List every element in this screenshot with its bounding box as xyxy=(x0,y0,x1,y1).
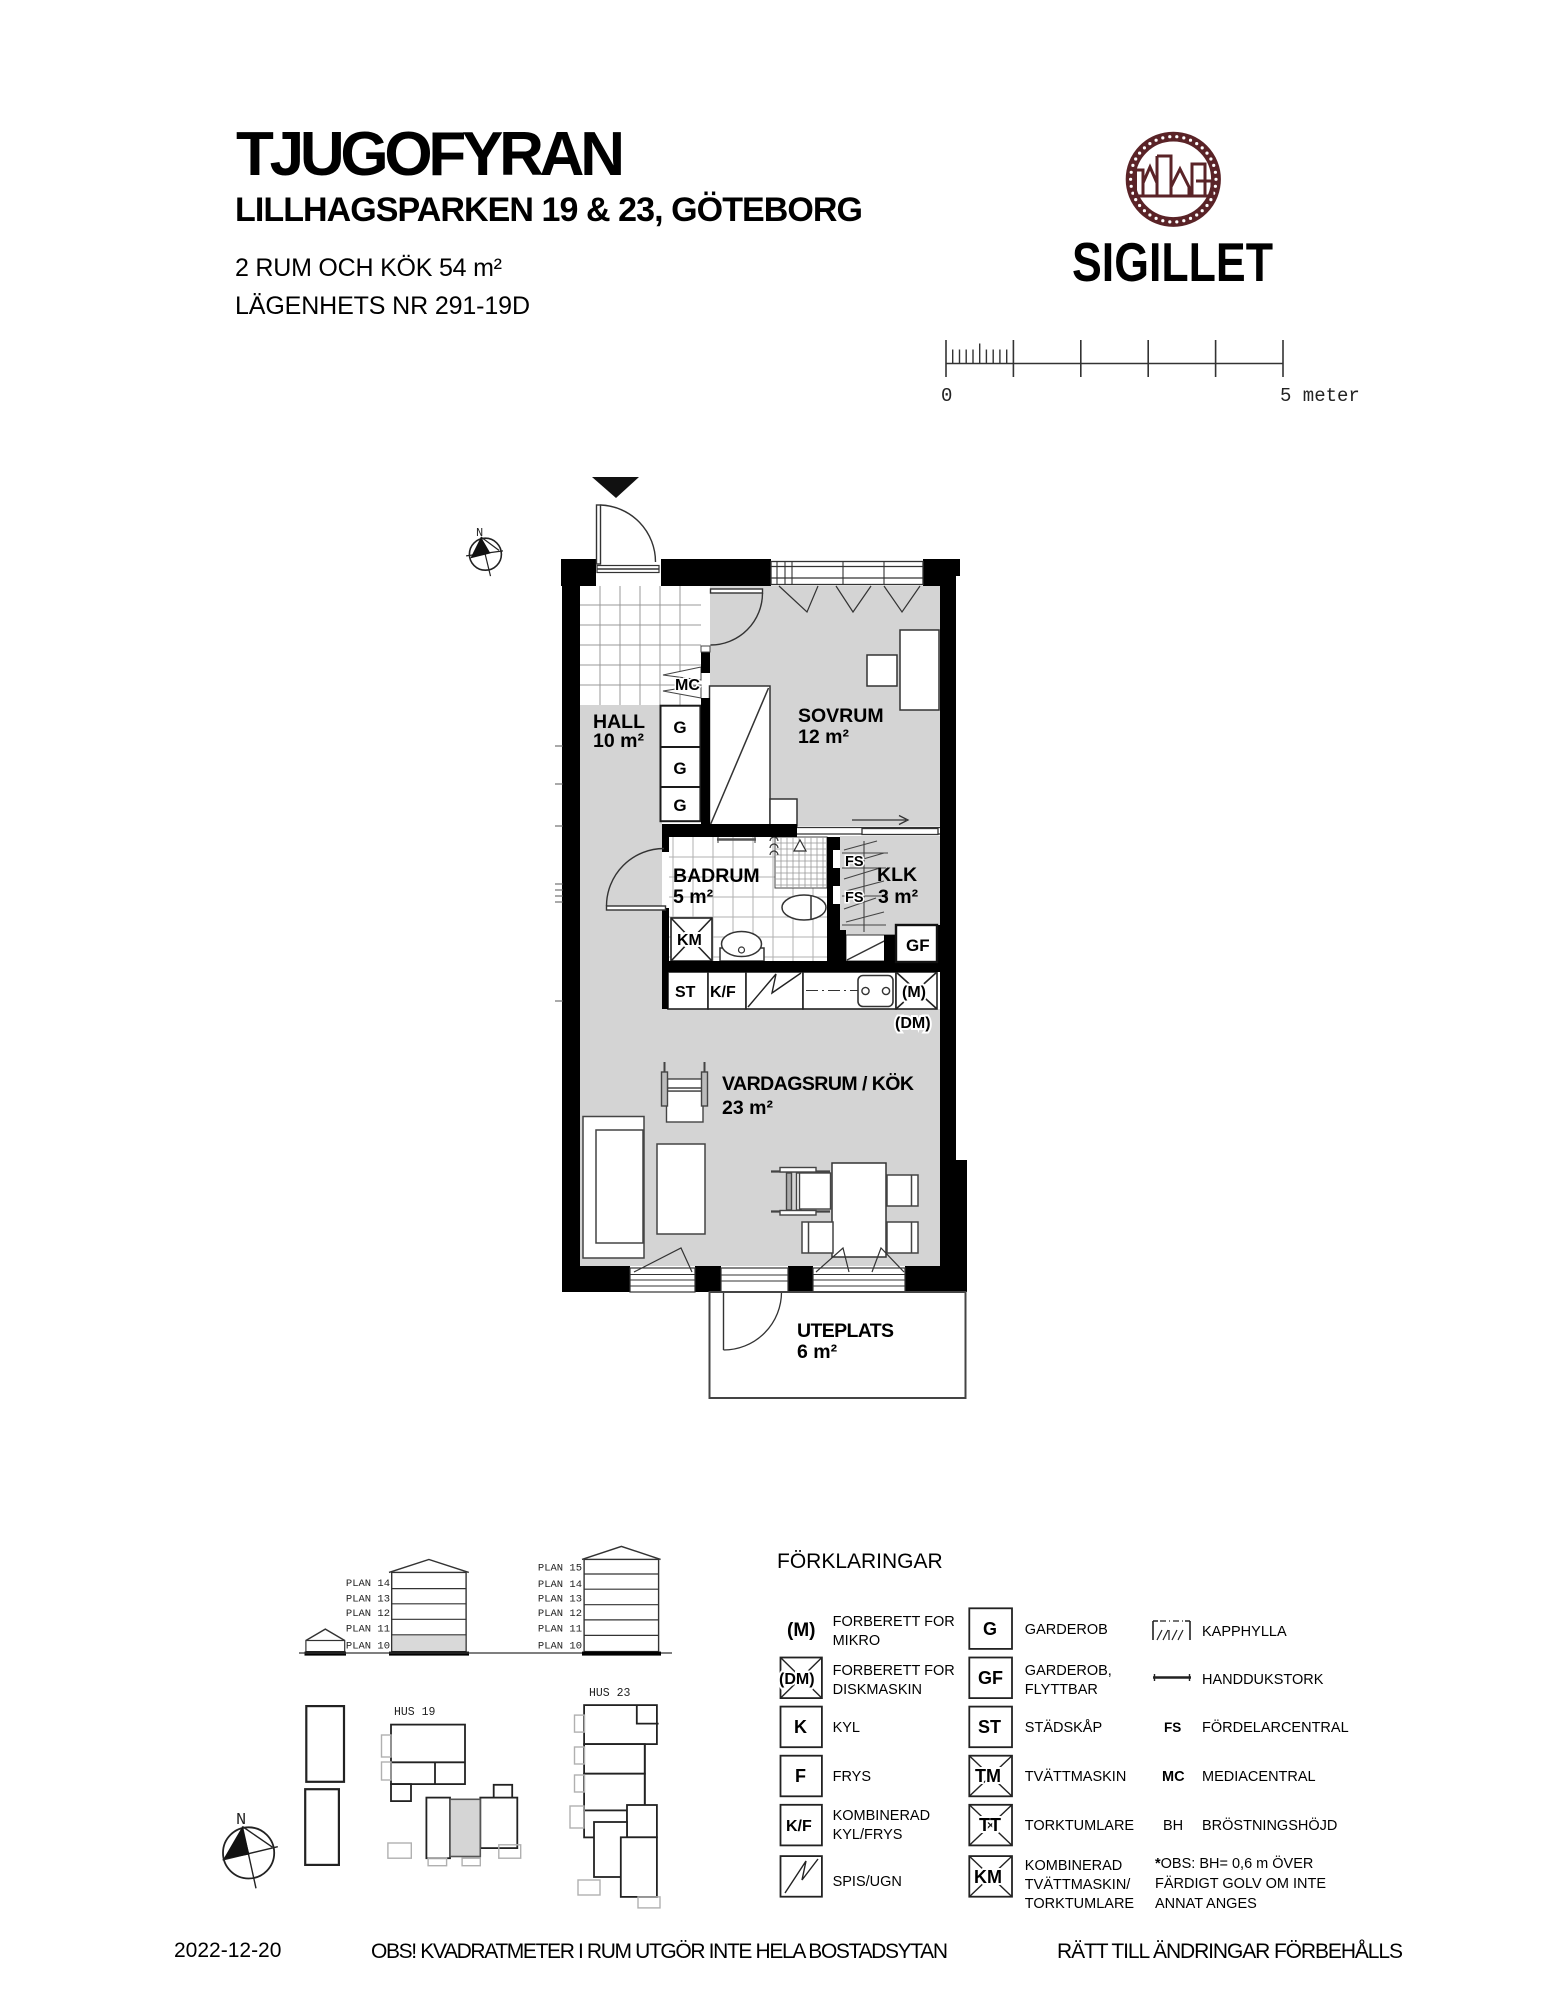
svg-text:MEDIACENTRAL: MEDIACENTRAL xyxy=(1202,1769,1316,1785)
svg-text:KOMBINERAD: KOMBINERAD xyxy=(833,1808,931,1824)
svg-text:PLAN 12: PLAN 12 xyxy=(538,1608,582,1620)
svg-text:K: K xyxy=(794,1717,807,1737)
svg-text:PLAN 13: PLAN 13 xyxy=(538,1594,582,1606)
svg-text:2022-12-20: 2022-12-20 xyxy=(174,1939,281,1962)
svg-text:TVÄTTMASKIN/: TVÄTTMASKIN/ xyxy=(1025,1876,1132,1893)
svg-text:PLAN 10: PLAN 10 xyxy=(538,1641,582,1653)
svg-text:K/F: K/F xyxy=(710,984,736,1001)
svg-text:SIGILLET: SIGILLET xyxy=(1072,231,1273,293)
svg-text:UTEPLATS: UTEPLATS xyxy=(797,1320,894,1342)
svg-text:GARDEROB,: GARDEROB, xyxy=(1025,1663,1112,1679)
svg-text:DISKMASKIN: DISKMASKIN xyxy=(833,1682,922,1698)
svg-text:G: G xyxy=(673,759,686,778)
svg-text:F: F xyxy=(795,1766,806,1786)
svg-text:K/F: K/F xyxy=(786,1818,812,1835)
svg-text:KYL/FRYS: KYL/FRYS xyxy=(833,1827,903,1843)
svg-text:PLAN 11: PLAN 11 xyxy=(346,1624,390,1636)
svg-text:STÄDSKÅP: STÄDSKÅP xyxy=(1025,1719,1102,1736)
svg-text:SOVRUM: SOVRUM xyxy=(798,705,884,727)
svg-text:ST: ST xyxy=(978,1717,1001,1737)
svg-text:10 m²: 10 m² xyxy=(593,730,644,752)
svg-text:G: G xyxy=(983,1619,997,1639)
svg-text:5 m²: 5 m² xyxy=(673,886,714,908)
svg-text:FORBERETT FOR: FORBERETT FOR xyxy=(833,1663,955,1679)
svg-text:KM: KM xyxy=(677,932,702,949)
svg-text:LÄGENHETS NR 291-19D: LÄGENHETS NR 291-19D xyxy=(235,292,530,320)
svg-text:TORKTUMLARE: TORKTUMLARE xyxy=(1025,1896,1135,1912)
svg-text:GF: GF xyxy=(978,1668,1003,1688)
svg-text:GF: GF xyxy=(906,936,930,955)
svg-text:BRÖSTNINGSHÖJD: BRÖSTNINGSHÖJD xyxy=(1202,1816,1337,1834)
svg-text:HANDDUKSTORK: HANDDUKSTORK xyxy=(1202,1672,1324,1688)
svg-text:PLAN 11: PLAN 11 xyxy=(538,1624,582,1636)
svg-text:(DM): (DM) xyxy=(779,1671,815,1688)
svg-text:12 m²: 12 m² xyxy=(798,726,849,748)
svg-text:FLYTTBAR: FLYTTBAR xyxy=(1025,1682,1098,1698)
svg-text:KLK: KLK xyxy=(877,864,917,886)
svg-text:6 m²: 6 m² xyxy=(797,1341,838,1363)
svg-text:BADRUM: BADRUM xyxy=(673,865,760,887)
svg-text:RÄTT TILL ÄNDRINGAR FÖRBEHÅLLS: RÄTT TILL ÄNDRINGAR FÖRBEHÅLLS xyxy=(1057,1940,1403,1963)
svg-text:5 meter: 5 meter xyxy=(1280,385,1360,407)
svg-text:(DM): (DM) xyxy=(895,1015,931,1032)
svg-text:OBS! KVADRATMETER I RUM UTGÖR: OBS! KVADRATMETER I RUM UTGÖR INTE HELA … xyxy=(371,1940,948,1963)
svg-text:FÖRKLARINGAR: FÖRKLARINGAR xyxy=(777,1550,943,1573)
svg-text:MC: MC xyxy=(1162,1769,1185,1785)
svg-text:TT: TT xyxy=(979,1815,1001,1835)
svg-text:MIKRO: MIKRO xyxy=(833,1633,881,1649)
svg-text:FRYS: FRYS xyxy=(833,1769,871,1785)
svg-text:SPIS/UGN: SPIS/UGN xyxy=(833,1874,902,1890)
svg-text:PLAN 12: PLAN 12 xyxy=(346,1608,390,1620)
svg-text:*OBS: BH= 0,6 m ÖVER: *OBS: BH= 0,6 m ÖVER xyxy=(1155,1854,1313,1872)
svg-text:G: G xyxy=(673,796,686,815)
svg-text:LILLHAGSPARKEN 19 & 23, GÖTEBO: LILLHAGSPARKEN 19 & 23, GÖTEBORG xyxy=(235,191,863,229)
svg-text:KYL: KYL xyxy=(833,1720,860,1736)
svg-text:TM: TM xyxy=(975,1766,1001,1786)
svg-text:PLAN 10: PLAN 10 xyxy=(346,1641,390,1653)
svg-text:FÄRDIGT GOLV OM INTE: FÄRDIGT GOLV OM INTE xyxy=(1155,1875,1326,1892)
svg-text:TVÄTTMASKIN: TVÄTTMASKIN xyxy=(1025,1768,1127,1785)
svg-text:FS: FS xyxy=(845,890,864,906)
svg-text:HUS 23: HUS 23 xyxy=(589,1687,631,1700)
svg-text:3 m²: 3 m² xyxy=(878,886,919,908)
svg-text:ANNAT ANGES: ANNAT ANGES xyxy=(1155,1896,1257,1912)
svg-text:KAPPHYLLA: KAPPHYLLA xyxy=(1202,1624,1287,1640)
svg-text:0: 0 xyxy=(941,385,952,407)
svg-text:23 m²: 23 m² xyxy=(722,1097,773,1119)
svg-text:TORKTUMLARE: TORKTUMLARE xyxy=(1025,1818,1135,1834)
svg-text:KM: KM xyxy=(974,1867,1002,1887)
svg-text:FS: FS xyxy=(845,854,864,870)
svg-text:2 RUM OCH KÖK 54 m²: 2 RUM OCH KÖK 54 m² xyxy=(235,254,502,282)
svg-text:FORBERETT FOR: FORBERETT FOR xyxy=(833,1614,955,1630)
svg-text:PLAN 13: PLAN 13 xyxy=(346,1594,390,1606)
svg-text:PLAN 15: PLAN 15 xyxy=(538,1563,582,1575)
svg-text:BH: BH xyxy=(1163,1818,1183,1834)
svg-text:ST: ST xyxy=(675,984,696,1001)
svg-text:VARDAGSRUM / KÖK: VARDAGSRUM / KÖK xyxy=(722,1072,914,1095)
svg-text:KOMBINERAD: KOMBINERAD xyxy=(1025,1858,1123,1874)
svg-text:TJUGOFYRAN: TJUGOFYRAN xyxy=(236,120,625,189)
svg-text:GARDEROB: GARDEROB xyxy=(1025,1622,1108,1638)
svg-text:HUS 19: HUS 19 xyxy=(394,1706,436,1719)
svg-text:G: G xyxy=(673,718,686,737)
svg-text:PLAN 14: PLAN 14 xyxy=(346,1578,390,1590)
svg-text:FS: FS xyxy=(1164,1720,1181,1735)
svg-text:FÖRDELARCENTRAL: FÖRDELARCENTRAL xyxy=(1202,1718,1349,1736)
svg-text:(M): (M) xyxy=(902,984,926,1001)
svg-text:PLAN 14: PLAN 14 xyxy=(538,1579,582,1591)
svg-text:(M): (M) xyxy=(787,1620,815,1641)
svg-text:MC: MC xyxy=(675,677,700,694)
